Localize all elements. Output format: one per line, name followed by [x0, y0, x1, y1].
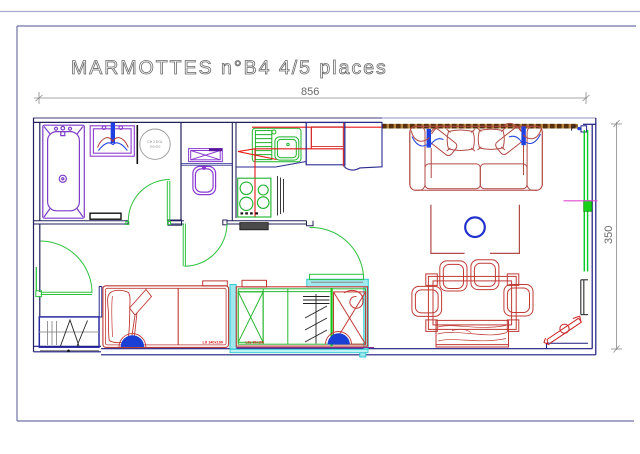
svg-text:CH 2 EOL: CH 2 EOL	[147, 140, 163, 144]
svg-text:856: 856	[301, 86, 319, 98]
svg-text:Lit 140x190: Lit 140x190	[203, 341, 223, 345]
svg-text:MARMOTTES n°B4 4/5 places: MARMOTTES n°B4 4/5 places	[71, 57, 388, 79]
svg-text:200x200: 200x200	[150, 145, 161, 149]
svg-text:350: 350	[603, 226, 615, 244]
svg-text:Lits 90x190: Lits 90x190	[246, 341, 264, 345]
